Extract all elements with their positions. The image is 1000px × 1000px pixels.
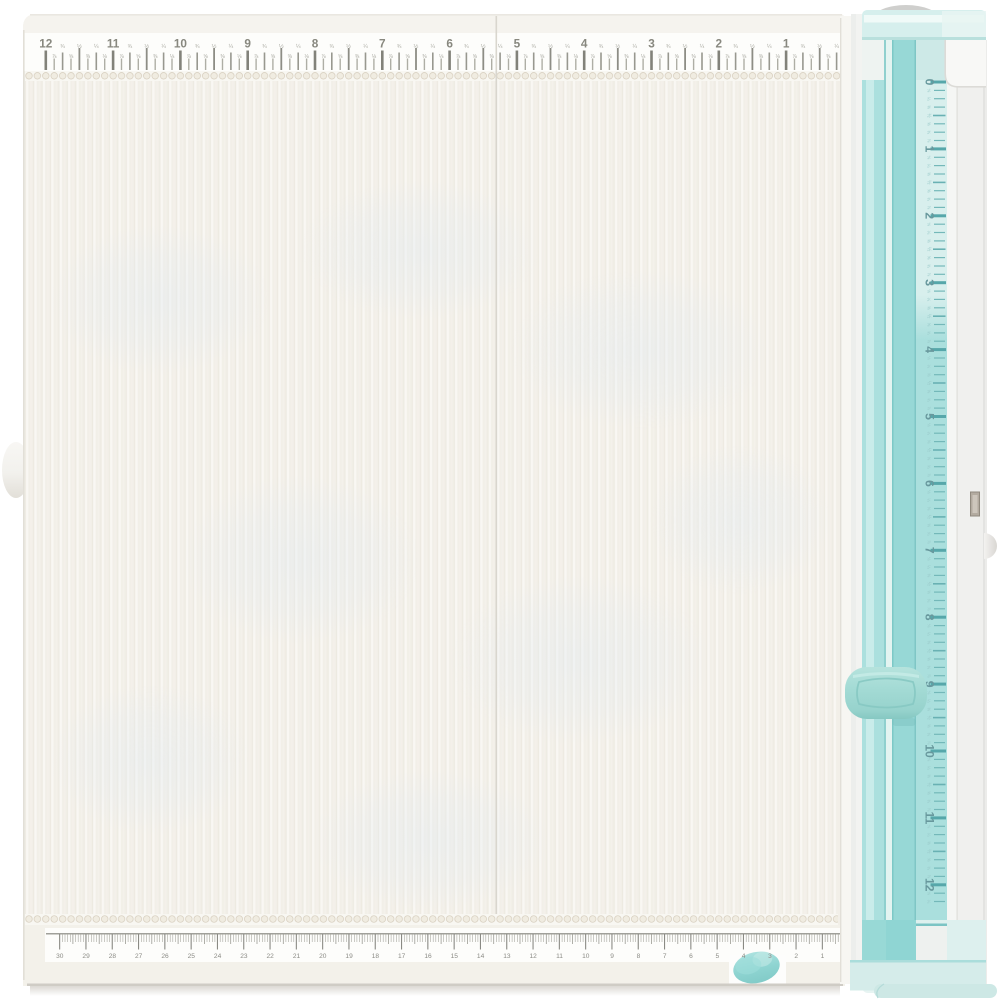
svg-text:⅛: ⅛	[372, 54, 377, 60]
svg-text:⅝: ⅝	[540, 54, 545, 60]
svg-text:⅝: ⅝	[927, 189, 932, 193]
svg-text:16: 16	[424, 953, 432, 960]
svg-text:⅝: ⅝	[473, 54, 478, 60]
svg-text:⅝: ⅝	[927, 256, 932, 260]
svg-text:14: 14	[477, 953, 485, 960]
svg-text:⅝: ⅝	[927, 858, 932, 862]
svg-text:⅛: ⅛	[927, 89, 932, 93]
svg-text:⅛: ⅛	[927, 758, 932, 762]
svg-text:⅝: ⅝	[742, 54, 747, 60]
svg-text:¾: ¾	[927, 465, 932, 469]
svg-text:12: 12	[923, 878, 937, 892]
svg-text:¼: ¼	[927, 364, 932, 368]
svg-text:1: 1	[821, 953, 825, 960]
svg-text:⅛: ⅛	[927, 155, 932, 159]
svg-text:½: ½	[481, 43, 486, 50]
svg-text:⅝: ⅝	[927, 657, 932, 661]
svg-text:⅜: ⅜	[422, 54, 427, 60]
svg-text:24: 24	[214, 953, 222, 960]
svg-text:⅛: ⅛	[574, 54, 579, 60]
svg-text:⅞: ⅞	[725, 54, 730, 60]
svg-text:⅛: ⅛	[708, 54, 713, 60]
svg-text:⅛: ⅛	[237, 54, 242, 60]
svg-text:¼: ¼	[363, 44, 368, 50]
svg-text:⅞: ⅞	[187, 54, 192, 60]
svg-text:⅜: ⅜	[927, 105, 932, 109]
svg-text:½: ½	[548, 43, 553, 50]
svg-text:10: 10	[923, 744, 937, 758]
svg-text:10: 10	[582, 953, 590, 960]
svg-text:¾: ¾	[927, 130, 932, 134]
svg-text:⅜: ⅜	[927, 440, 932, 444]
svg-text:⅞: ⅞	[927, 339, 932, 343]
svg-text:⅛: ⅛	[927, 222, 932, 226]
svg-text:13: 13	[503, 953, 511, 960]
svg-text:0: 0	[923, 79, 937, 86]
svg-text:⅝: ⅝	[809, 54, 814, 60]
svg-text:¼: ¼	[927, 498, 932, 502]
svg-text:⅛: ⅛	[927, 490, 932, 494]
svg-text:¼: ¼	[565, 44, 570, 50]
svg-text:½: ½	[615, 43, 620, 50]
svg-text:⅜: ⅜	[288, 54, 293, 60]
svg-text:¾: ¾	[60, 44, 65, 50]
svg-text:15: 15	[451, 953, 459, 960]
svg-text:½: ½	[750, 43, 755, 50]
svg-text:¼: ¼	[927, 900, 932, 904]
svg-text:⅜: ⅜	[927, 774, 932, 778]
svg-text:¼: ¼	[927, 164, 932, 168]
svg-text:⅝: ⅝	[927, 456, 932, 460]
svg-text:5: 5	[715, 953, 719, 960]
svg-text:¼: ¼	[161, 44, 166, 50]
svg-text:¾: ¾	[397, 44, 402, 50]
svg-text:4: 4	[581, 37, 588, 51]
svg-text:23: 23	[240, 953, 248, 960]
svg-text:26: 26	[161, 953, 169, 960]
svg-text:⅞: ⅞	[792, 54, 797, 60]
svg-text:⅜: ⅜	[86, 54, 91, 60]
svg-text:9: 9	[244, 37, 251, 51]
svg-text:12: 12	[39, 37, 53, 51]
svg-text:¼: ¼	[296, 44, 301, 50]
svg-text:¾: ¾	[927, 799, 932, 803]
svg-text:½: ½	[413, 43, 418, 50]
svg-text:5: 5	[514, 37, 521, 51]
svg-text:⅜: ⅜	[927, 507, 932, 511]
svg-text:⅜: ⅜	[927, 841, 932, 845]
svg-text:¾: ¾	[927, 866, 932, 870]
svg-text:½: ½	[683, 43, 688, 50]
svg-text:¾: ¾	[666, 44, 671, 50]
svg-text:10: 10	[174, 37, 188, 51]
svg-text:¾: ¾	[330, 44, 335, 50]
svg-text:3: 3	[648, 37, 655, 51]
svg-text:30: 30	[56, 953, 64, 960]
svg-text:⅝: ⅝	[675, 54, 680, 60]
svg-text:⅞: ⅞	[927, 272, 932, 276]
svg-text:29: 29	[82, 953, 90, 960]
svg-text:¼: ¼	[927, 565, 932, 569]
svg-text:2: 2	[794, 953, 798, 960]
svg-text:6: 6	[689, 953, 693, 960]
svg-text:⅛: ⅛	[927, 423, 932, 427]
svg-text:⅜: ⅜	[557, 54, 562, 60]
svg-text:¾: ¾	[927, 197, 932, 201]
svg-text:⅞: ⅞	[927, 741, 932, 745]
svg-text:⅜: ⅜	[927, 306, 932, 310]
svg-text:⅝: ⅝	[927, 791, 932, 795]
svg-text:⅛: ⅛	[927, 691, 932, 695]
svg-text:⅜: ⅜	[927, 239, 932, 243]
svg-text:¾: ¾	[927, 732, 932, 736]
svg-text:⅝: ⅝	[405, 54, 410, 60]
svg-text:⅝: ⅝	[927, 523, 932, 527]
svg-text:½: ½	[346, 43, 351, 50]
svg-text:¾: ¾	[262, 44, 267, 50]
svg-text:¼: ¼	[700, 44, 705, 50]
svg-text:¾: ¾	[531, 44, 536, 50]
svg-text:4: 4	[742, 953, 746, 960]
svg-text:7: 7	[663, 953, 667, 960]
svg-text:¼: ¼	[927, 298, 932, 302]
svg-text:⅜: ⅜	[826, 54, 831, 60]
svg-text:5: 5	[923, 413, 937, 420]
svg-text:20: 20	[319, 953, 327, 960]
svg-text:¼: ¼	[94, 44, 99, 50]
svg-text:¼: ¼	[927, 699, 932, 703]
svg-text:9: 9	[610, 953, 614, 960]
svg-text:⅛: ⅛	[927, 624, 932, 628]
svg-text:½: ½	[77, 43, 82, 50]
svg-text:¾: ¾	[927, 331, 932, 335]
svg-text:¾: ¾	[599, 44, 604, 50]
svg-text:1: 1	[783, 37, 790, 51]
svg-text:⅛: ⅛	[927, 289, 932, 293]
svg-text:¼: ¼	[632, 44, 637, 50]
svg-text:⅛: ⅛	[506, 54, 511, 60]
svg-text:⅞: ⅞	[119, 54, 124, 60]
svg-text:¼: ¼	[927, 632, 932, 636]
svg-text:⅛: ⅛	[439, 54, 444, 60]
svg-text:⅞: ⅞	[658, 54, 663, 60]
svg-text:⅜: ⅜	[927, 707, 932, 711]
svg-text:7: 7	[923, 547, 937, 554]
svg-text:⅞: ⅞	[927, 674, 932, 678]
svg-text:6: 6	[923, 480, 937, 487]
svg-text:¾: ¾	[927, 599, 932, 603]
svg-text:¾: ¾	[927, 264, 932, 268]
svg-text:⅛: ⅛	[103, 54, 108, 60]
svg-text:19: 19	[345, 953, 353, 960]
svg-text:⅞: ⅞	[927, 473, 932, 477]
svg-text:17: 17	[398, 953, 406, 960]
svg-text:18: 18	[372, 953, 380, 960]
svg-text:11: 11	[556, 953, 563, 960]
svg-text:2: 2	[923, 212, 937, 219]
svg-text:¼: ¼	[927, 97, 932, 101]
svg-text:⅜: ⅜	[691, 54, 696, 60]
svg-text:27: 27	[135, 953, 143, 960]
svg-text:⅞: ⅞	[389, 54, 394, 60]
svg-text:¾: ¾	[128, 44, 133, 50]
svg-text:⅜: ⅜	[624, 54, 629, 60]
svg-text:⅞: ⅞	[927, 607, 932, 611]
svg-text:7: 7	[379, 37, 386, 51]
svg-text:⅝: ⅝	[607, 54, 612, 60]
svg-text:22: 22	[267, 953, 275, 960]
svg-text:⅝: ⅝	[338, 54, 343, 60]
svg-text:⅞: ⅞	[456, 54, 461, 60]
svg-text:⅝: ⅝	[927, 724, 932, 728]
svg-text:⅜: ⅜	[759, 54, 764, 60]
svg-text:⅞: ⅞	[927, 406, 932, 410]
svg-text:¼: ¼	[229, 44, 234, 50]
svg-text:6: 6	[446, 37, 453, 51]
svg-text:¼: ¼	[834, 44, 839, 50]
svg-text:11: 11	[107, 37, 120, 51]
svg-text:⅛: ⅛	[641, 54, 646, 60]
svg-text:⅞: ⅞	[590, 54, 595, 60]
svg-text:¼: ¼	[927, 231, 932, 235]
svg-text:25: 25	[188, 953, 196, 960]
svg-text:¾: ¾	[464, 44, 469, 50]
svg-text:¾: ¾	[927, 666, 932, 670]
svg-text:½: ½	[279, 43, 284, 50]
svg-text:⅝: ⅝	[927, 323, 932, 327]
svg-text:⅞: ⅞	[927, 875, 932, 879]
svg-text:28: 28	[109, 953, 117, 960]
svg-text:¼: ¼	[927, 766, 932, 770]
svg-text:4: 4	[923, 346, 937, 353]
svg-text:⅝: ⅝	[927, 390, 932, 394]
svg-text:⅝: ⅝	[927, 122, 932, 126]
svg-text:⅝: ⅝	[927, 590, 932, 594]
svg-text:8: 8	[312, 37, 319, 51]
svg-text:¾: ¾	[927, 532, 932, 536]
svg-text:2: 2	[716, 37, 723, 51]
svg-text:⅝: ⅝	[271, 54, 276, 60]
svg-text:⅜: ⅜	[490, 54, 495, 60]
svg-text:¼: ¼	[498, 44, 503, 50]
svg-text:21: 21	[293, 953, 301, 960]
svg-text:¼: ¼	[767, 44, 772, 50]
svg-text:⅝: ⅝	[136, 54, 141, 60]
svg-text:½: ½	[212, 43, 217, 50]
svg-text:⅜: ⅜	[927, 373, 932, 377]
svg-text:⅛: ⅛	[170, 54, 175, 60]
svg-text:11: 11	[923, 811, 937, 824]
svg-text:⅜: ⅜	[927, 172, 932, 176]
svg-text:12: 12	[530, 953, 538, 960]
svg-text:1: 1	[923, 146, 937, 153]
svg-text:⅜: ⅜	[927, 574, 932, 578]
svg-text:⅜: ⅜	[355, 54, 360, 60]
svg-text:8: 8	[923, 614, 937, 621]
svg-text:3: 3	[768, 953, 772, 960]
svg-text:⅜: ⅜	[153, 54, 158, 60]
svg-text:⅛: ⅛	[927, 356, 932, 360]
svg-text:⅞: ⅞	[927, 139, 932, 143]
svg-text:⅛: ⅛	[927, 557, 932, 561]
svg-text:⅞: ⅞	[52, 54, 57, 60]
svg-text:¾: ¾	[733, 44, 738, 50]
svg-text:⅞: ⅞	[927, 808, 932, 812]
svg-text:½: ½	[144, 43, 149, 50]
svg-text:⅞: ⅞	[254, 54, 259, 60]
svg-text:⅝: ⅝	[203, 54, 208, 60]
svg-text:⅜: ⅜	[927, 640, 932, 644]
svg-text:¼: ¼	[431, 44, 436, 50]
svg-text:¾: ¾	[195, 44, 200, 50]
svg-text:¼: ¼	[927, 431, 932, 435]
svg-text:3: 3	[923, 279, 937, 286]
svg-text:⅞: ⅞	[927, 540, 932, 544]
svg-text:⅛: ⅛	[927, 824, 932, 828]
svg-text:¼: ¼	[927, 833, 932, 837]
svg-text:⅞: ⅞	[523, 54, 528, 60]
svg-text:8: 8	[637, 953, 641, 960]
svg-text:⅛: ⅛	[927, 891, 932, 895]
svg-text:⅝: ⅝	[69, 54, 74, 60]
svg-text:¾: ¾	[927, 398, 932, 402]
svg-text:½: ½	[817, 43, 822, 50]
svg-text:⅛: ⅛	[776, 54, 781, 60]
svg-text:¾: ¾	[801, 44, 806, 50]
svg-text:⅛: ⅛	[304, 54, 309, 60]
svg-text:⅞: ⅞	[927, 206, 932, 210]
svg-text:⅞: ⅞	[321, 54, 326, 60]
svg-text:⅜: ⅜	[220, 54, 225, 60]
